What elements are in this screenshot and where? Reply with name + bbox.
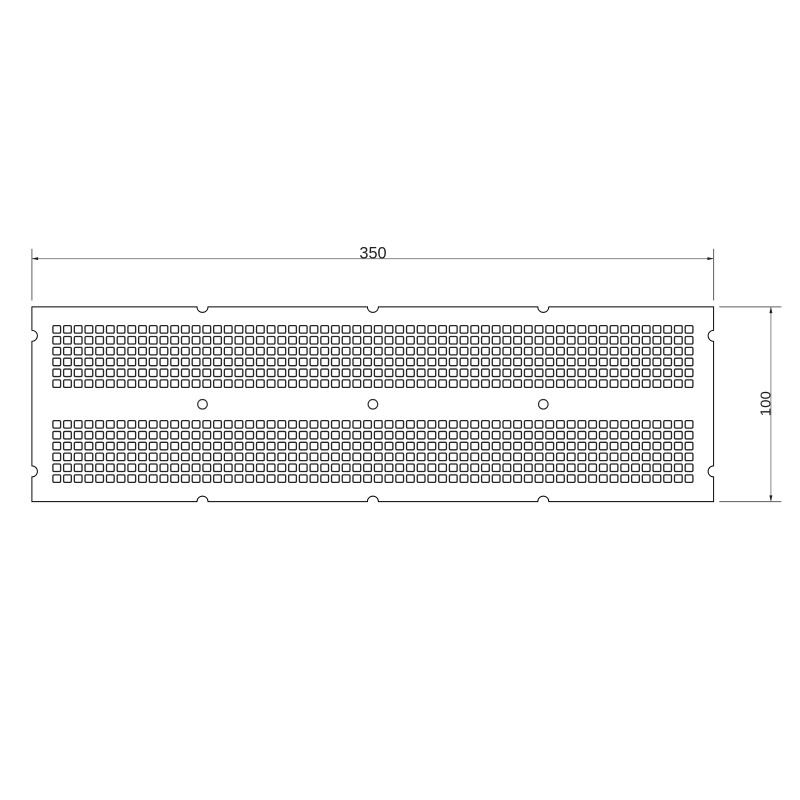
svg-text:100: 100 bbox=[757, 391, 774, 416]
svg-text:350: 350 bbox=[359, 244, 386, 262]
